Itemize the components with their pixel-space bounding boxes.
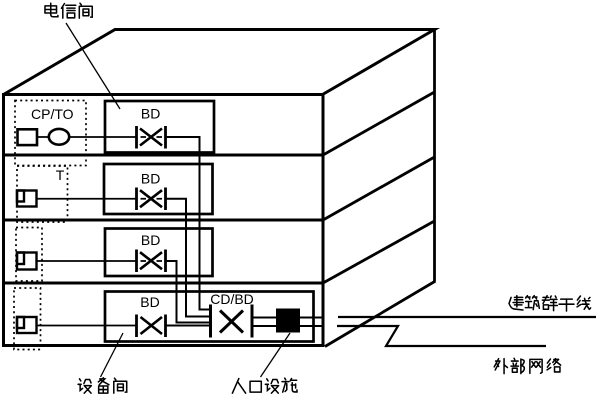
svg-text:BD: BD	[141, 232, 160, 248]
svg-text:BD: BD	[141, 171, 160, 187]
svg-text:BD: BD	[140, 294, 159, 310]
svg-text:CD/BD: CD/BD	[210, 291, 254, 307]
svg-text:BD: BD	[141, 106, 160, 122]
svg-text:CP/TO: CP/TO	[31, 106, 74, 122]
svg-text:T: T	[56, 167, 65, 183]
